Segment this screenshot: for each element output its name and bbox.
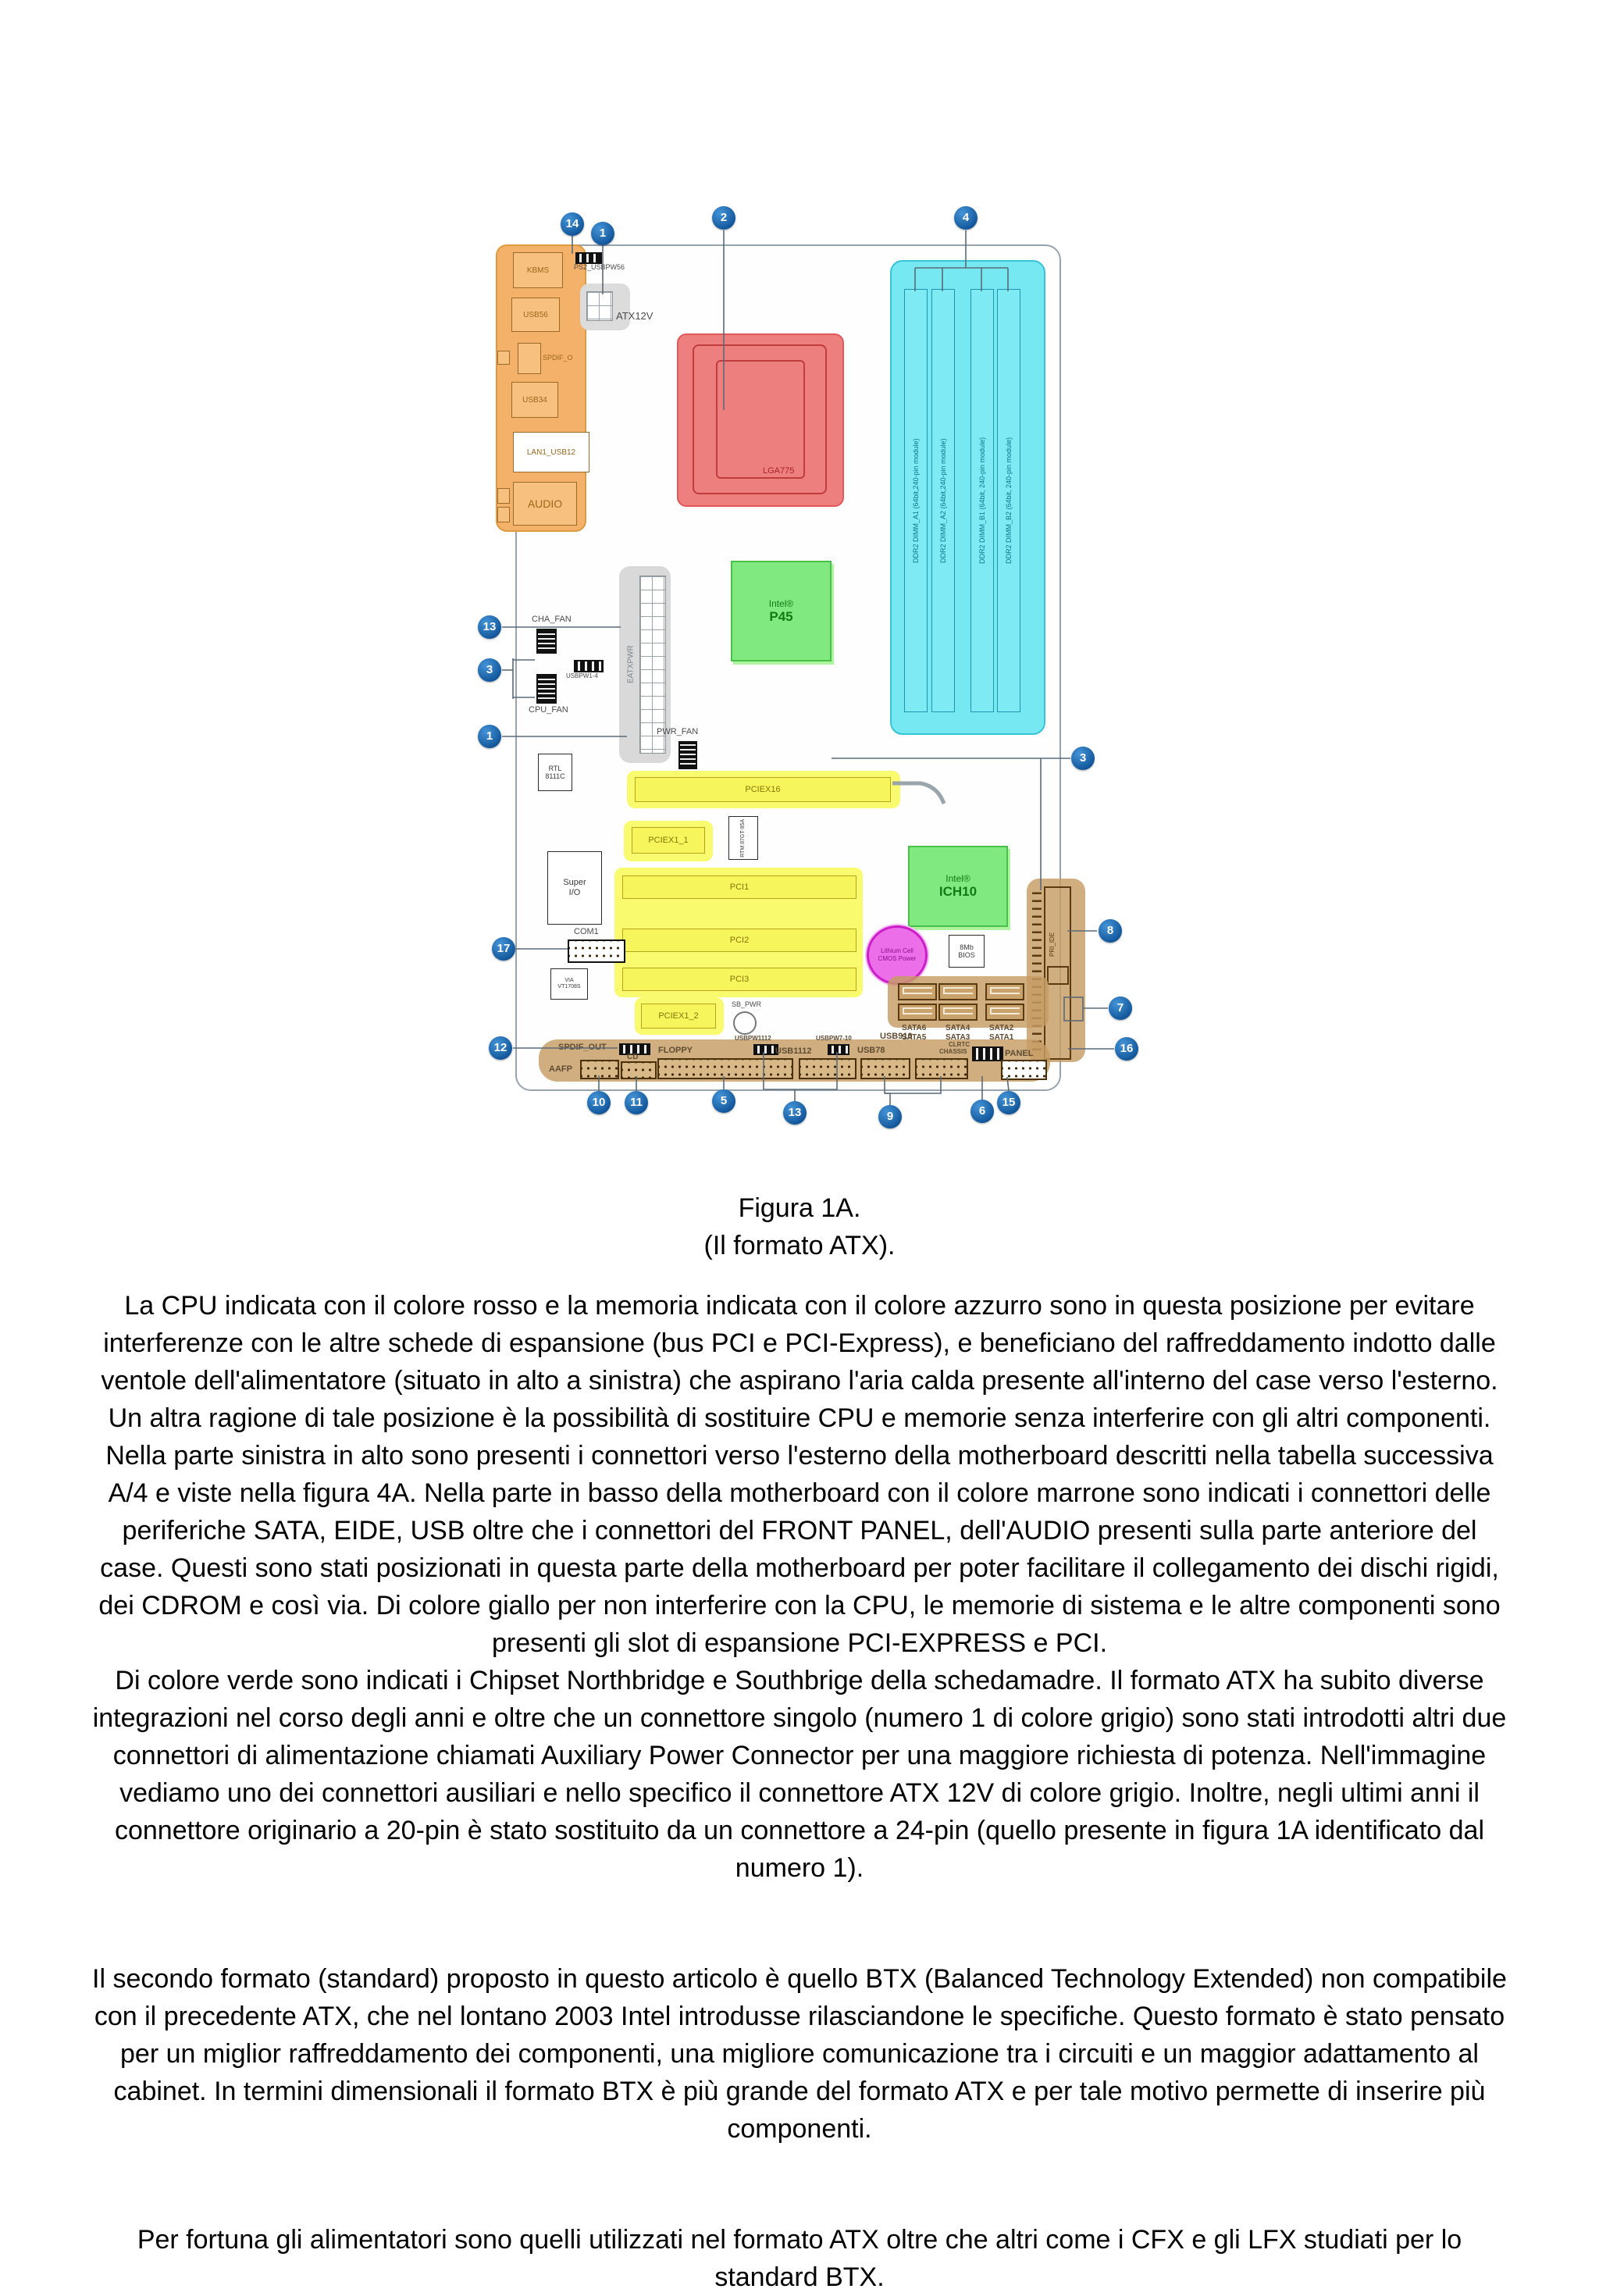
callout-3-right: 3 (1071, 747, 1095, 770)
callout-13-bottom: 13 (783, 1101, 807, 1125)
callout-16: 16 (1115, 1037, 1138, 1061)
callout-9: 9 (878, 1105, 902, 1128)
callout-13-left: 13 (478, 615, 501, 639)
callout-1-left: 1 (478, 725, 501, 748)
callout-3-left: 3 (478, 658, 501, 682)
figure-motherboard-atx: KBMS USB56 SPDIF_O USB34 LAN1_USB12 AUDI… (441, 191, 1159, 1136)
callout-17: 17 (492, 937, 515, 961)
callout-11: 11 (625, 1091, 648, 1114)
figure-caption-line2: (Il formato ATX). (0, 1231, 1599, 1261)
callout-14: 14 (561, 212, 584, 236)
paragraph-atx-power: Di colore verde sono indicati i Chipset … (92, 1662, 1507, 1887)
callout-2: 2 (712, 206, 735, 230)
document-page: { "figure": { "callouts": ["14","1","2",… (0, 0, 1599, 2262)
callout-1-top: 1 (591, 222, 614, 245)
callout-8: 8 (1099, 919, 1122, 943)
callout-4: 4 (954, 206, 978, 230)
paragraph-spacer-1 (92, 1887, 1507, 1960)
article-body: La CPU indicata con il colore rosso e la… (92, 1287, 1507, 2296)
figure-caption-line1: Figura 1A. (0, 1193, 1599, 1224)
paragraph-spacer-2 (92, 2148, 1507, 2221)
callout-6: 6 (970, 1100, 994, 1123)
paragraph-atx-layout: La CPU indicata con il colore rosso e la… (92, 1287, 1507, 1662)
callout-10: 10 (587, 1091, 611, 1114)
callout-7: 7 (1109, 996, 1132, 1020)
paragraph-psu: Per fortuna gli alimentatori sono quelli… (92, 2221, 1507, 2296)
paragraph-btx: Il secondo formato (standard) proposto i… (92, 1960, 1507, 2148)
callout-5: 5 (712, 1089, 735, 1113)
callout-leader-lines (441, 191, 1159, 1136)
callout-15: 15 (997, 1091, 1020, 1114)
callout-12: 12 (489, 1036, 512, 1060)
pciex16-retention-hook (892, 783, 944, 804)
